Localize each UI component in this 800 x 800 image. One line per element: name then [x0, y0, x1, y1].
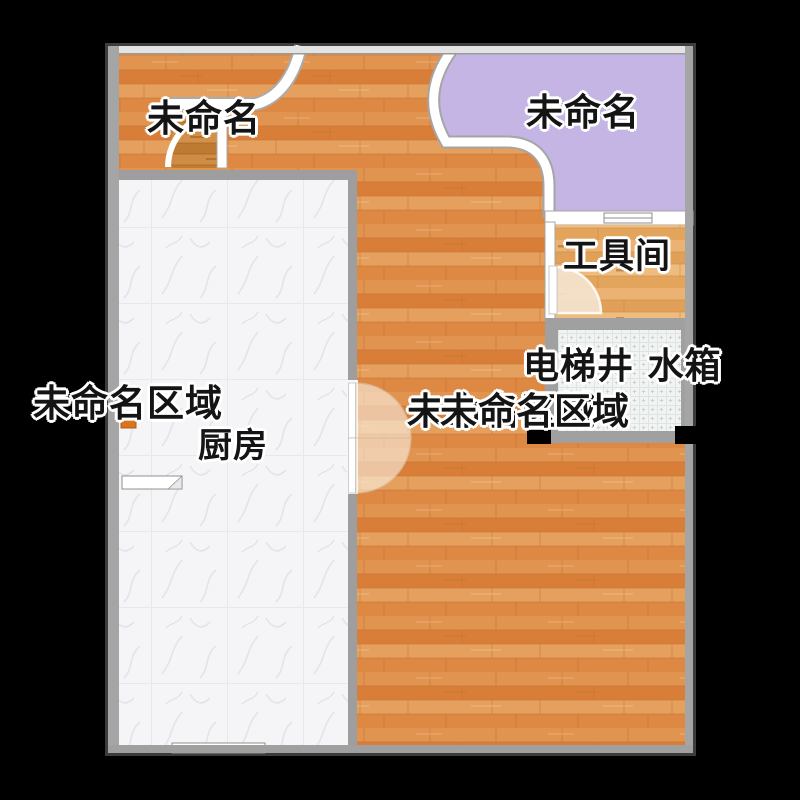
area-label-center-overlap[interactable]: 未命名区域 [440, 393, 630, 430]
wall-outer-bottom[interactable] [108, 745, 693, 753]
window-lounge[interactable] [604, 213, 652, 223]
room-label-top-left-area[interactable]: 未命名 [147, 100, 261, 137]
wall-outer-top-edge [108, 53, 693, 55]
room-label-tool-room[interactable]: 工具间 [563, 240, 671, 275]
kitchen-shelf[interactable] [122, 476, 182, 489]
wall-outer-right[interactable] [685, 46, 693, 753]
area-label-left[interactable]: 未命名区域 [33, 385, 223, 422]
door-double-leaf-bottom[interactable] [349, 438, 356, 493]
tool-door-leaf[interactable] [549, 266, 557, 314]
room-label-kitchen[interactable]: 厨房 [198, 429, 268, 463]
room-label-elevator-shaft[interactable]: 电梯井 水箱 [523, 349, 722, 385]
door-double-leaf-top[interactable] [349, 383, 356, 438]
wall-outer-top[interactable] [108, 46, 693, 54]
floor-plan-stage: 未命名 未命名 工具间 电梯井 水箱 未命名区域 厨房 未命名区域 未命名区域 [0, 0, 800, 800]
room-label-lounge[interactable]: 未命名 [526, 94, 640, 131]
pillar-right[interactable] [675, 426, 696, 444]
